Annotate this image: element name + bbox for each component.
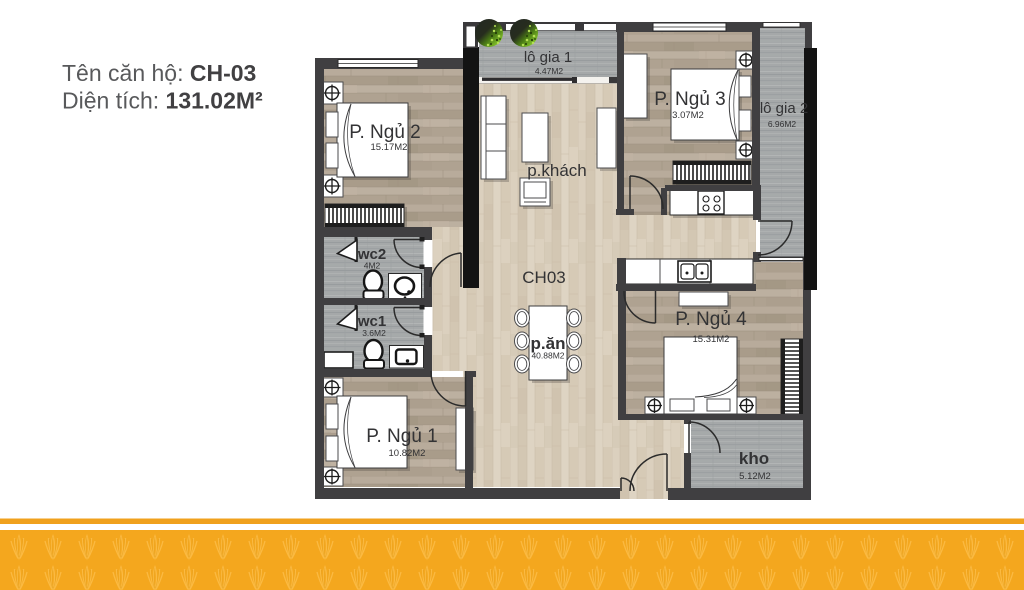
svg-text:15.17M2: 15.17M2 bbox=[371, 142, 408, 153]
svg-text:P. Ngủ 2: P. Ngủ 2 bbox=[349, 122, 420, 143]
svg-text:Diện tích: 131.02M²: Diện tích: 131.02M² bbox=[62, 88, 263, 114]
svg-text:P. Ngủ 1: P. Ngủ 1 bbox=[366, 426, 437, 447]
svg-text:kho: kho bbox=[739, 449, 769, 468]
svg-text:4.47M2: 4.47M2 bbox=[535, 66, 564, 76]
svg-text:6.96M2: 6.96M2 bbox=[768, 119, 797, 129]
svg-text:5.12M2: 5.12M2 bbox=[739, 471, 771, 482]
svg-text:3.6M2: 3.6M2 bbox=[362, 328, 386, 338]
svg-text:40.88M2: 40.88M2 bbox=[531, 351, 564, 361]
svg-text:4M2: 4M2 bbox=[364, 261, 381, 271]
svg-text:10.82M2: 10.82M2 bbox=[389, 448, 426, 459]
svg-text:lô gia 1: lô gia 1 bbox=[524, 49, 572, 66]
svg-text:15.31M2: 15.31M2 bbox=[693, 334, 730, 345]
svg-text:3.07M2: 3.07M2 bbox=[672, 110, 704, 121]
svg-text:p.khách: p.khách bbox=[527, 161, 587, 180]
svg-text:P. Ngủ 3: P. Ngủ 3 bbox=[654, 89, 725, 110]
svg-text:Tên căn hộ: CH-03: Tên căn hộ: CH-03 bbox=[62, 60, 256, 86]
svg-text:P. Ngủ 4: P. Ngủ 4 bbox=[675, 309, 747, 330]
svg-text:lô gia 2: lô gia 2 bbox=[760, 100, 808, 117]
svg-text:CH03: CH03 bbox=[522, 268, 565, 287]
